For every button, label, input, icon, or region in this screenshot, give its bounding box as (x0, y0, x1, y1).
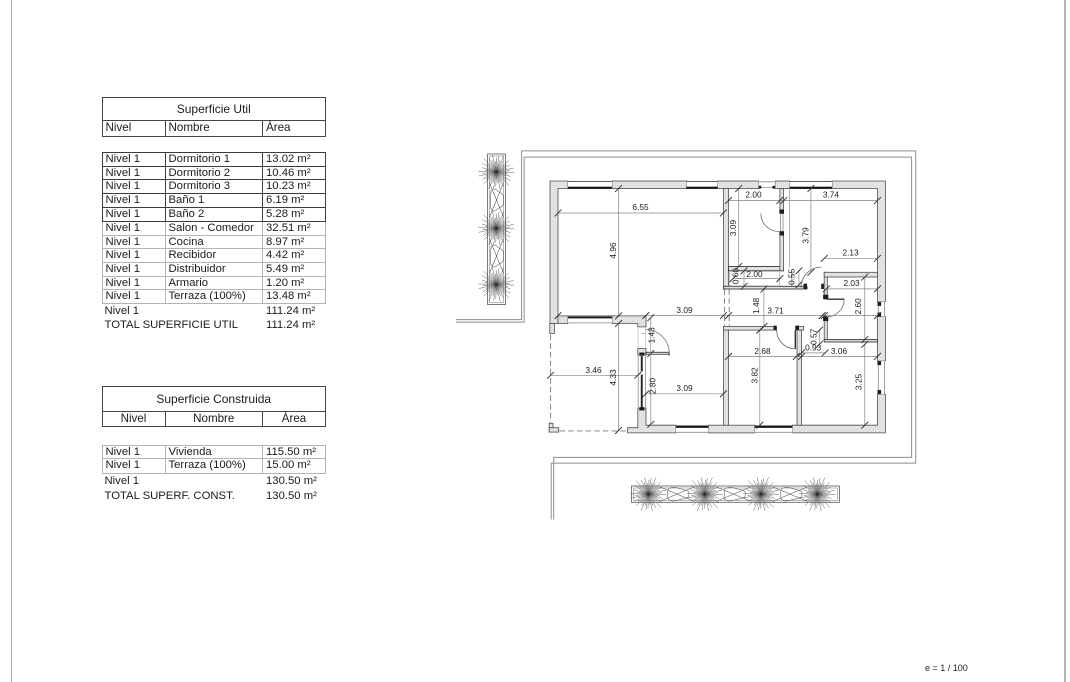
svg-text:3.09: 3.09 (676, 305, 693, 315)
svg-text:3.25: 3.25 (854, 374, 864, 391)
svg-text:6.55: 6.55 (632, 202, 649, 212)
svg-text:2.13: 2.13 (843, 248, 860, 258)
svg-text:2.00: 2.00 (745, 190, 762, 200)
svg-text:4.96: 4.96 (608, 242, 618, 259)
svg-text:3.09: 3.09 (676, 383, 693, 393)
svg-text:2.00: 2.00 (746, 269, 763, 279)
svg-text:0.57: 0.57 (809, 328, 819, 345)
svg-text:3.82: 3.82 (749, 367, 759, 384)
svg-text:3.06: 3.06 (831, 346, 848, 356)
svg-text:3.74: 3.74 (823, 190, 840, 200)
svg-text:1.48: 1.48 (751, 297, 761, 314)
svg-text:3.79: 3.79 (800, 227, 810, 244)
svg-text:0.55: 0.55 (787, 268, 797, 285)
svg-text:0.60: 0.60 (730, 268, 740, 285)
svg-text:3.71: 3.71 (767, 305, 784, 315)
svg-text:3.09: 3.09 (728, 220, 738, 237)
svg-text:2.68: 2.68 (754, 346, 771, 356)
svg-text:2.80: 2.80 (647, 378, 657, 395)
svg-text:2.03: 2.03 (844, 278, 861, 288)
svg-text:2.60: 2.60 (853, 298, 863, 315)
svg-text:3.46: 3.46 (585, 365, 602, 375)
svg-text:1.43: 1.43 (647, 327, 657, 344)
svg-text:4.33: 4.33 (608, 369, 618, 386)
